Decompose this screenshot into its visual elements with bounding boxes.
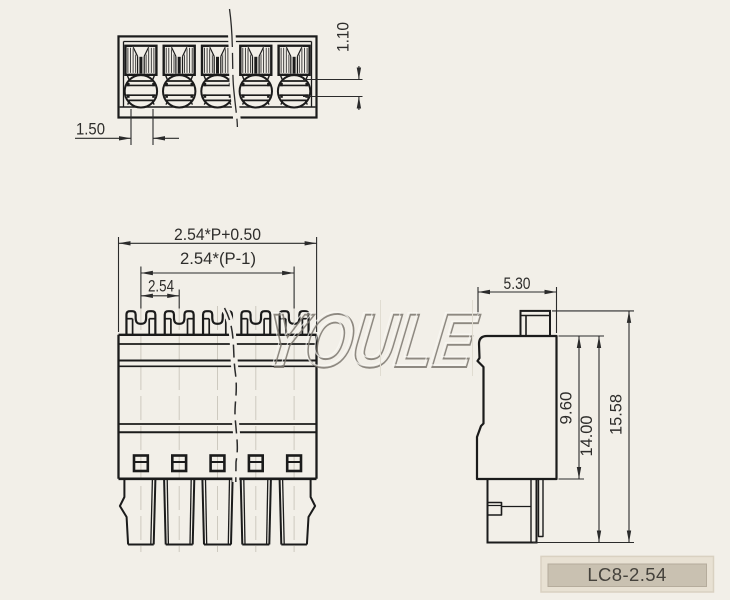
svg-text:LC8-2.54: LC8-2.54	[587, 564, 666, 585]
svg-text:2.54: 2.54	[148, 277, 174, 295]
svg-text:1.50: 1.50	[76, 121, 105, 139]
svg-text:2.54*P+0.50: 2.54*P+0.50	[174, 226, 261, 244]
svg-text:15.58: 15.58	[608, 394, 626, 435]
svg-text:YOULE: YOULE	[257, 297, 481, 382]
svg-text:2.54*(P-1): 2.54*(P-1)	[180, 250, 256, 268]
svg-text:5.30: 5.30	[504, 275, 531, 293]
svg-text:1.10: 1.10	[335, 22, 353, 52]
svg-text:9.60: 9.60	[558, 392, 576, 425]
svg-text:14.00: 14.00	[578, 416, 596, 457]
